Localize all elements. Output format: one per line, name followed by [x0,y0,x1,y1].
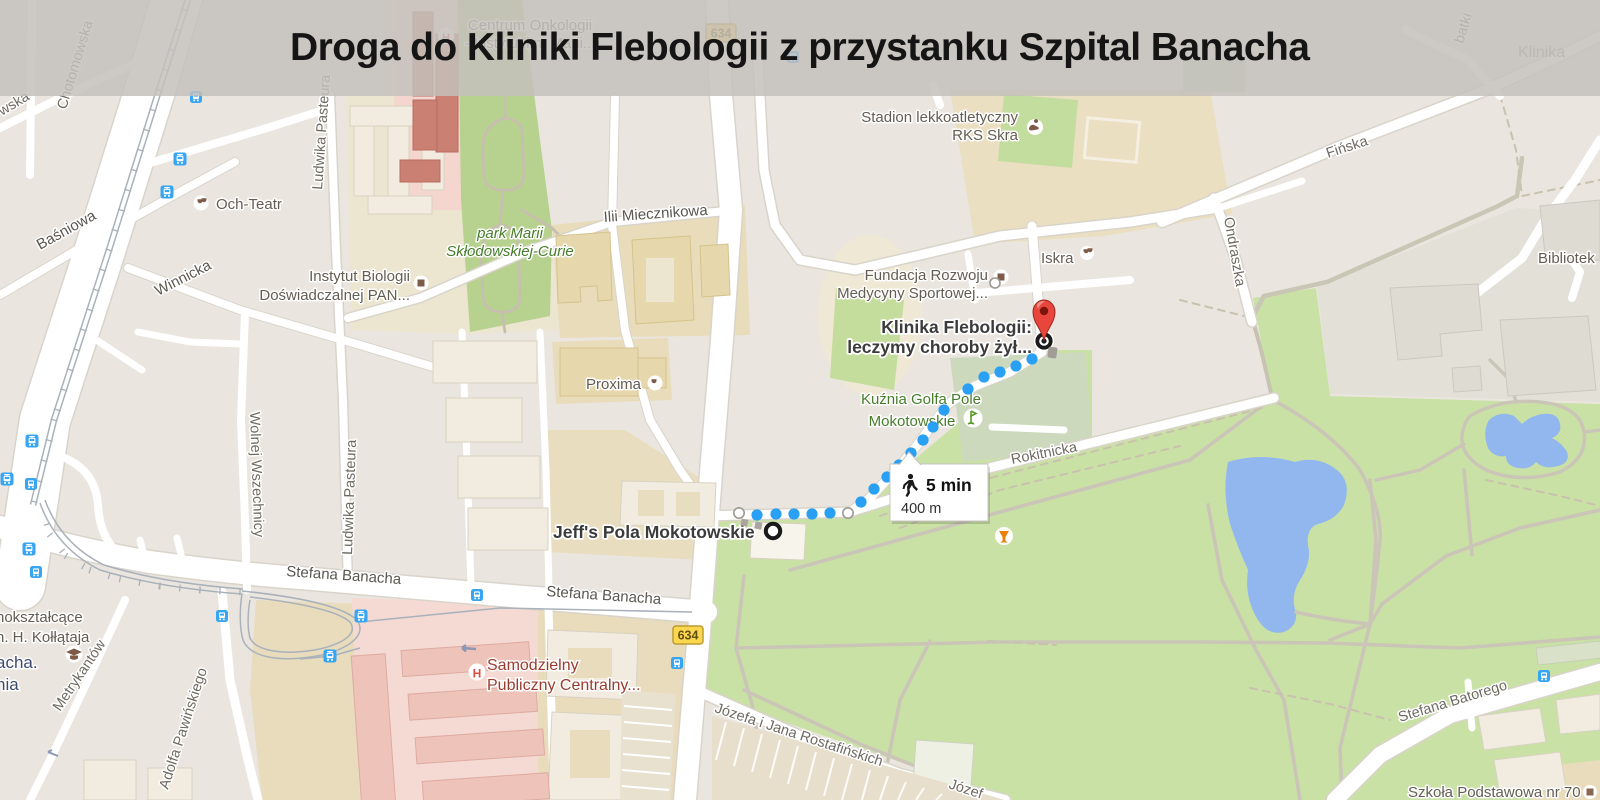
svg-text:400 m: 400 m [901,501,941,517]
svg-text:Jeff's Pola Mokotowskie: Jeff's Pola Mokotowskie [553,522,755,542]
svg-text:Medycyny Sportowej...: Medycyny Sportowej... [837,285,988,302]
svg-text:H: H [473,667,482,681]
svg-text:Bibliotek: Bibliotek [1538,250,1595,267]
svg-text:Och-Teatr: Och-Teatr [216,196,282,213]
svg-text:nokształcące: nokształcące [0,609,83,626]
svg-text:Samodzielny: Samodzielny [487,657,579,674]
svg-text:RKS Skra: RKS Skra [952,127,1019,144]
svg-text:Proxima: Proxima [586,376,642,393]
svg-text:Publiczny Centralny...: Publiczny Centralny... [487,677,641,694]
svg-text:Kuźnia Golfa Pole: Kuźnia Golfa Pole [861,391,981,408]
svg-text:5 min: 5 min [926,475,972,495]
svg-text:Mokotowskie: Mokotowskie [869,413,956,430]
svg-text:Instytut Biologii: Instytut Biologii [309,268,410,285]
svg-text:Doświadczalnej PAN...: Doświadczalnej PAN... [259,287,410,304]
svg-text:Fundacja Rozwoju: Fundacja Rozwoju [865,267,988,284]
svg-text:Iskra: Iskra [1041,250,1074,267]
svg-text:634: 634 [678,629,699,643]
svg-text:Stadion lekkoatletyczny: Stadion lekkoatletyczny [861,109,1018,126]
svg-text:Klinika Flebologii:: Klinika Flebologii: [881,317,1032,337]
svg-text:leczymy choroby żył...: leczymy choroby żył... [847,337,1032,357]
svg-text:n. H. Kołłątaja: n. H. Kołłątaja [0,629,90,646]
svg-text:Skłodowskiej-Curie: Skłodowskiej-Curie [446,243,574,260]
svg-text:Droga do Kliniki Flebologii z: Droga do Kliniki Flebologii z przystanku… [290,26,1310,69]
svg-text:park Marii: park Marii [476,225,544,242]
svg-text:acha.: acha. [0,653,38,672]
svg-text:Szkoła Podstawowa nr 70: Szkoła Podstawowa nr 70 [1408,784,1581,800]
svg-text:nia: nia [0,675,19,694]
